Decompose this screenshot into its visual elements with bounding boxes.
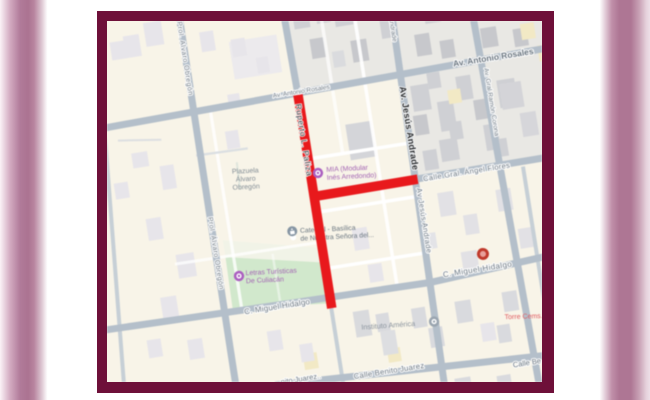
svg-text:Plazuela: Plazuela <box>232 167 259 175</box>
svg-text:Torre Cems...: Torre Cems... <box>504 313 542 321</box>
svg-text:Obregón: Obregón <box>232 183 260 191</box>
